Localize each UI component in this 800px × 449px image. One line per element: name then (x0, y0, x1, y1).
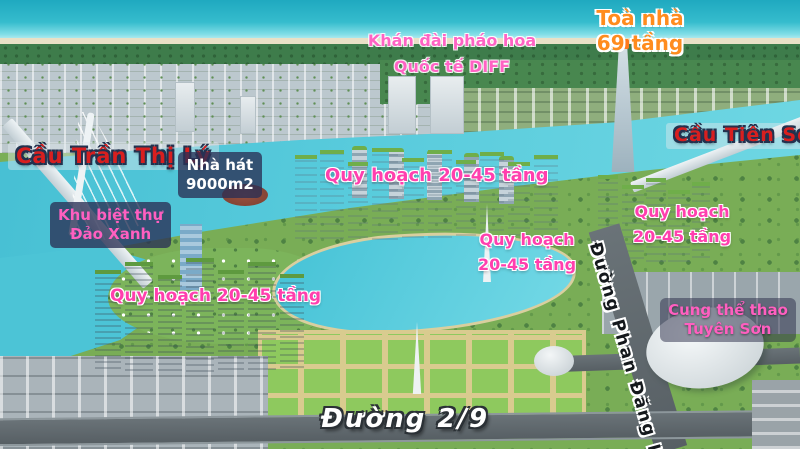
highrise (186, 258, 214, 372)
label-plan-mid: Quy hoạch 20-45 tầng (472, 228, 582, 278)
small-dome (534, 346, 574, 376)
label-line: 9000m2 (186, 175, 254, 194)
mid-rise (240, 96, 256, 134)
label-line: Toà nhà (580, 6, 700, 31)
highrise (125, 262, 153, 371)
label-line: Tuyên Sơn (668, 320, 788, 339)
label-sports-palace: Cung thể thao Tuyên Sơn (660, 298, 796, 342)
label-diff-grandstand: Khán đài pháo hoa Quốc tế DIFF (362, 28, 542, 79)
label-line: Khu biệt thự (58, 206, 163, 225)
highrise (295, 155, 317, 239)
label-villa-zone: Khu biệt thự Đảo Xanh (50, 202, 171, 248)
highrise (320, 150, 344, 239)
label-tower-69: Toà nhà 69 tầng (580, 6, 700, 56)
highrise (95, 270, 121, 369)
label-line: 20-45 tầng (626, 225, 738, 250)
highrise (428, 150, 452, 238)
label-line: Quy hoạch (626, 200, 738, 225)
label-line: Khán đài pháo hoa (362, 28, 542, 54)
label-line: Nhà hát (186, 156, 254, 175)
mid-rise (175, 82, 195, 132)
label-line: 69 tầng (580, 31, 700, 56)
label-line: Quốc tế DIFF (362, 54, 542, 80)
label-bridge-tien-son: Cầu Tiên Sơn (666, 123, 800, 149)
city-blocks-bottom-right (752, 380, 800, 449)
label-theater: Nhà hát 9000m2 (178, 152, 262, 198)
aerial-masterplan-render: Toà nhà 69 tầng Khán đài pháo hoa Quốc t… (0, 0, 800, 449)
fireworks-grandstand (430, 76, 464, 134)
label-line: 20-45 tầng (472, 253, 582, 278)
label-line: Quy hoạch (472, 228, 582, 253)
highrise (248, 262, 276, 370)
label-plan-center: Quy hoạch 20-45 tầng (325, 165, 495, 188)
label-plan-left: Quy hoạch 20-45 tầng (110, 286, 285, 307)
highrise (218, 270, 244, 370)
label-plan-right: Quy hoạch 20-45 tầng (626, 200, 738, 250)
highrise (372, 148, 398, 240)
label-line: Đảo Xanh (58, 225, 163, 244)
label-road-2-9: Đường 2/9 (315, 403, 495, 436)
fireworks-grandstand (388, 76, 416, 134)
label-line: Cung thể thao (668, 301, 788, 320)
